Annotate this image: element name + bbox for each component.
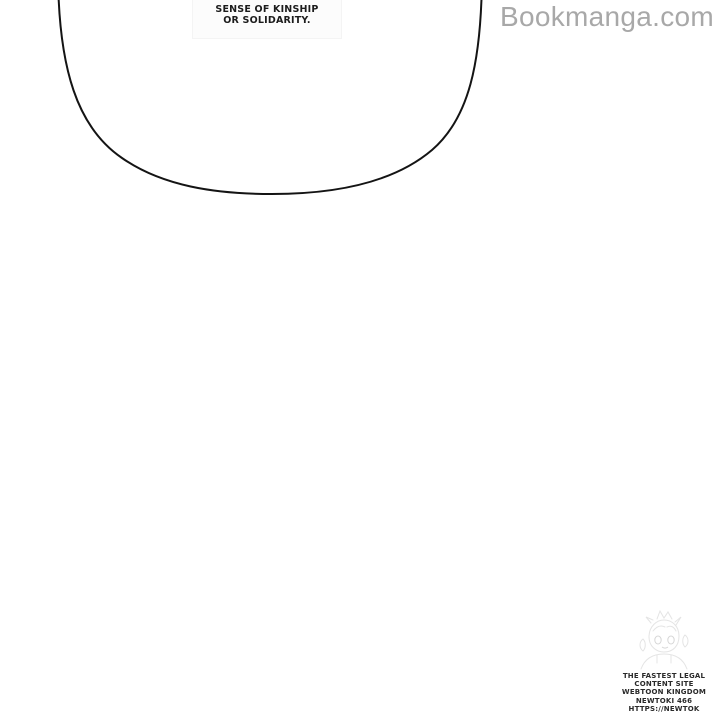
speech-bubble-line-2: OR SOLIDARITY. (188, 15, 346, 26)
site-watermark: Bookmanga.com (500, 2, 714, 32)
footer-stamp-line: HTTPS://NEWTOK (600, 705, 720, 713)
footer-stamp: THE FASTEST LEGAL CONTENT SITE WEBTOON K… (600, 609, 720, 713)
footer-stamp-text: THE FASTEST LEGAL CONTENT SITE WEBTOON K… (600, 672, 720, 713)
footer-stamp-line: NEWTOKI 466 (600, 697, 720, 705)
footer-stamp-line: CONTENT SITE (600, 680, 720, 688)
speech-bubble-line-1: SENSE OF KINSHIP (188, 4, 346, 15)
footer-stamp-line: THE FASTEST LEGAL (600, 672, 720, 680)
manga-page: SENSE OF KINSHIP OR SOLIDARITY. Bookmang… (0, 0, 720, 720)
speech-bubble-text: SENSE OF KINSHIP OR SOLIDARITY. (188, 4, 346, 26)
newtoki-mascot-sketch-icon (627, 609, 701, 671)
footer-stamp-line: WEBTOON KINGDOM (600, 688, 720, 696)
